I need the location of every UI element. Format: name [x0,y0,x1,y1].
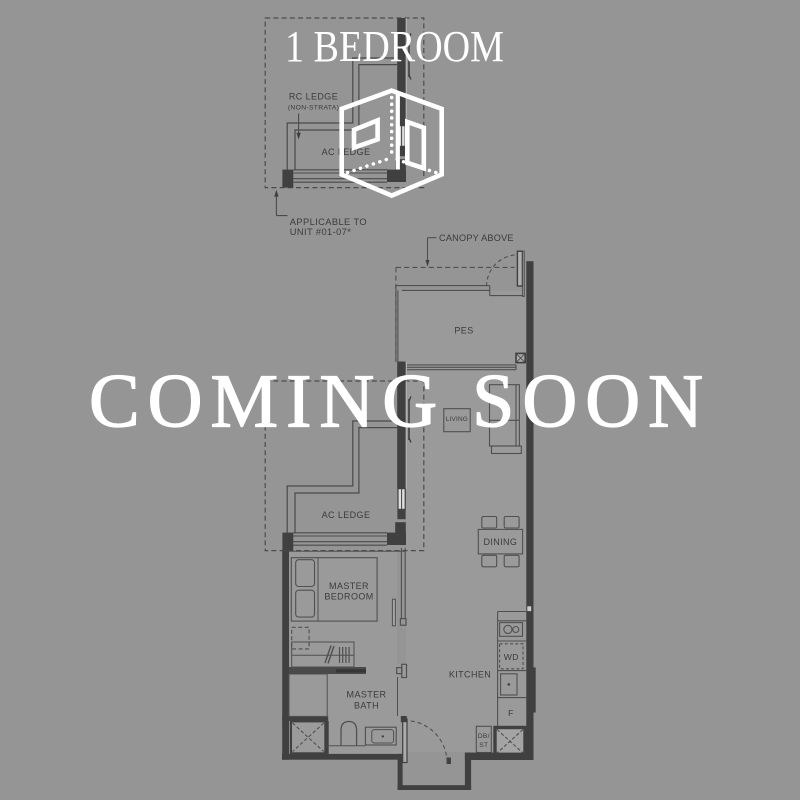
svg-text:ST: ST [479,742,488,749]
svg-text:BATH: BATH [354,701,379,711]
svg-text:MASTER: MASTER [329,581,369,591]
svg-text:PES: PES [454,325,473,335]
svg-text:(NON-STRATA): (NON-STRATA) [288,105,339,112]
svg-text:MASTER: MASTER [347,690,387,700]
svg-text:DB/: DB/ [478,733,490,740]
svg-text:APPLICABLE TO: APPLICABLE TO [290,217,367,227]
svg-text:UNIT #01-07*: UNIT #01-07* [290,227,351,237]
svg-text:RC LEDGE: RC LEDGE [289,92,338,102]
svg-text:1 BEDROOM: 1 BEDROOM [285,22,504,71]
svg-text:F: F [508,708,514,718]
svg-text:COMING SOON: COMING SOON [89,360,703,444]
svg-text:WD: WD [504,652,519,662]
svg-text:BEDROOM: BEDROOM [324,592,373,602]
svg-text:CANOPY ABOVE: CANOPY ABOVE [439,233,514,243]
svg-text:DINING: DINING [483,537,517,547]
svg-text:KITCHEN: KITCHEN [449,669,491,679]
